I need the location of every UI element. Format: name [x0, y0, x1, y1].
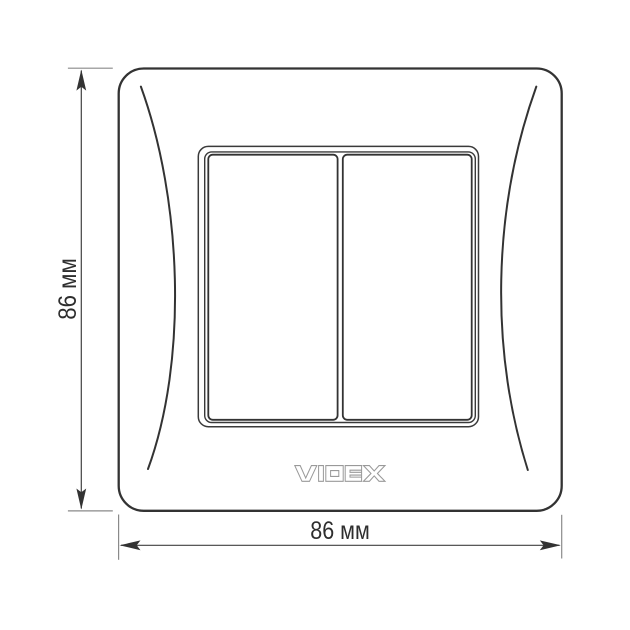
svg-text:86 мм: 86 мм [310, 518, 370, 545]
svg-text:86 мм: 86 мм [55, 258, 82, 320]
